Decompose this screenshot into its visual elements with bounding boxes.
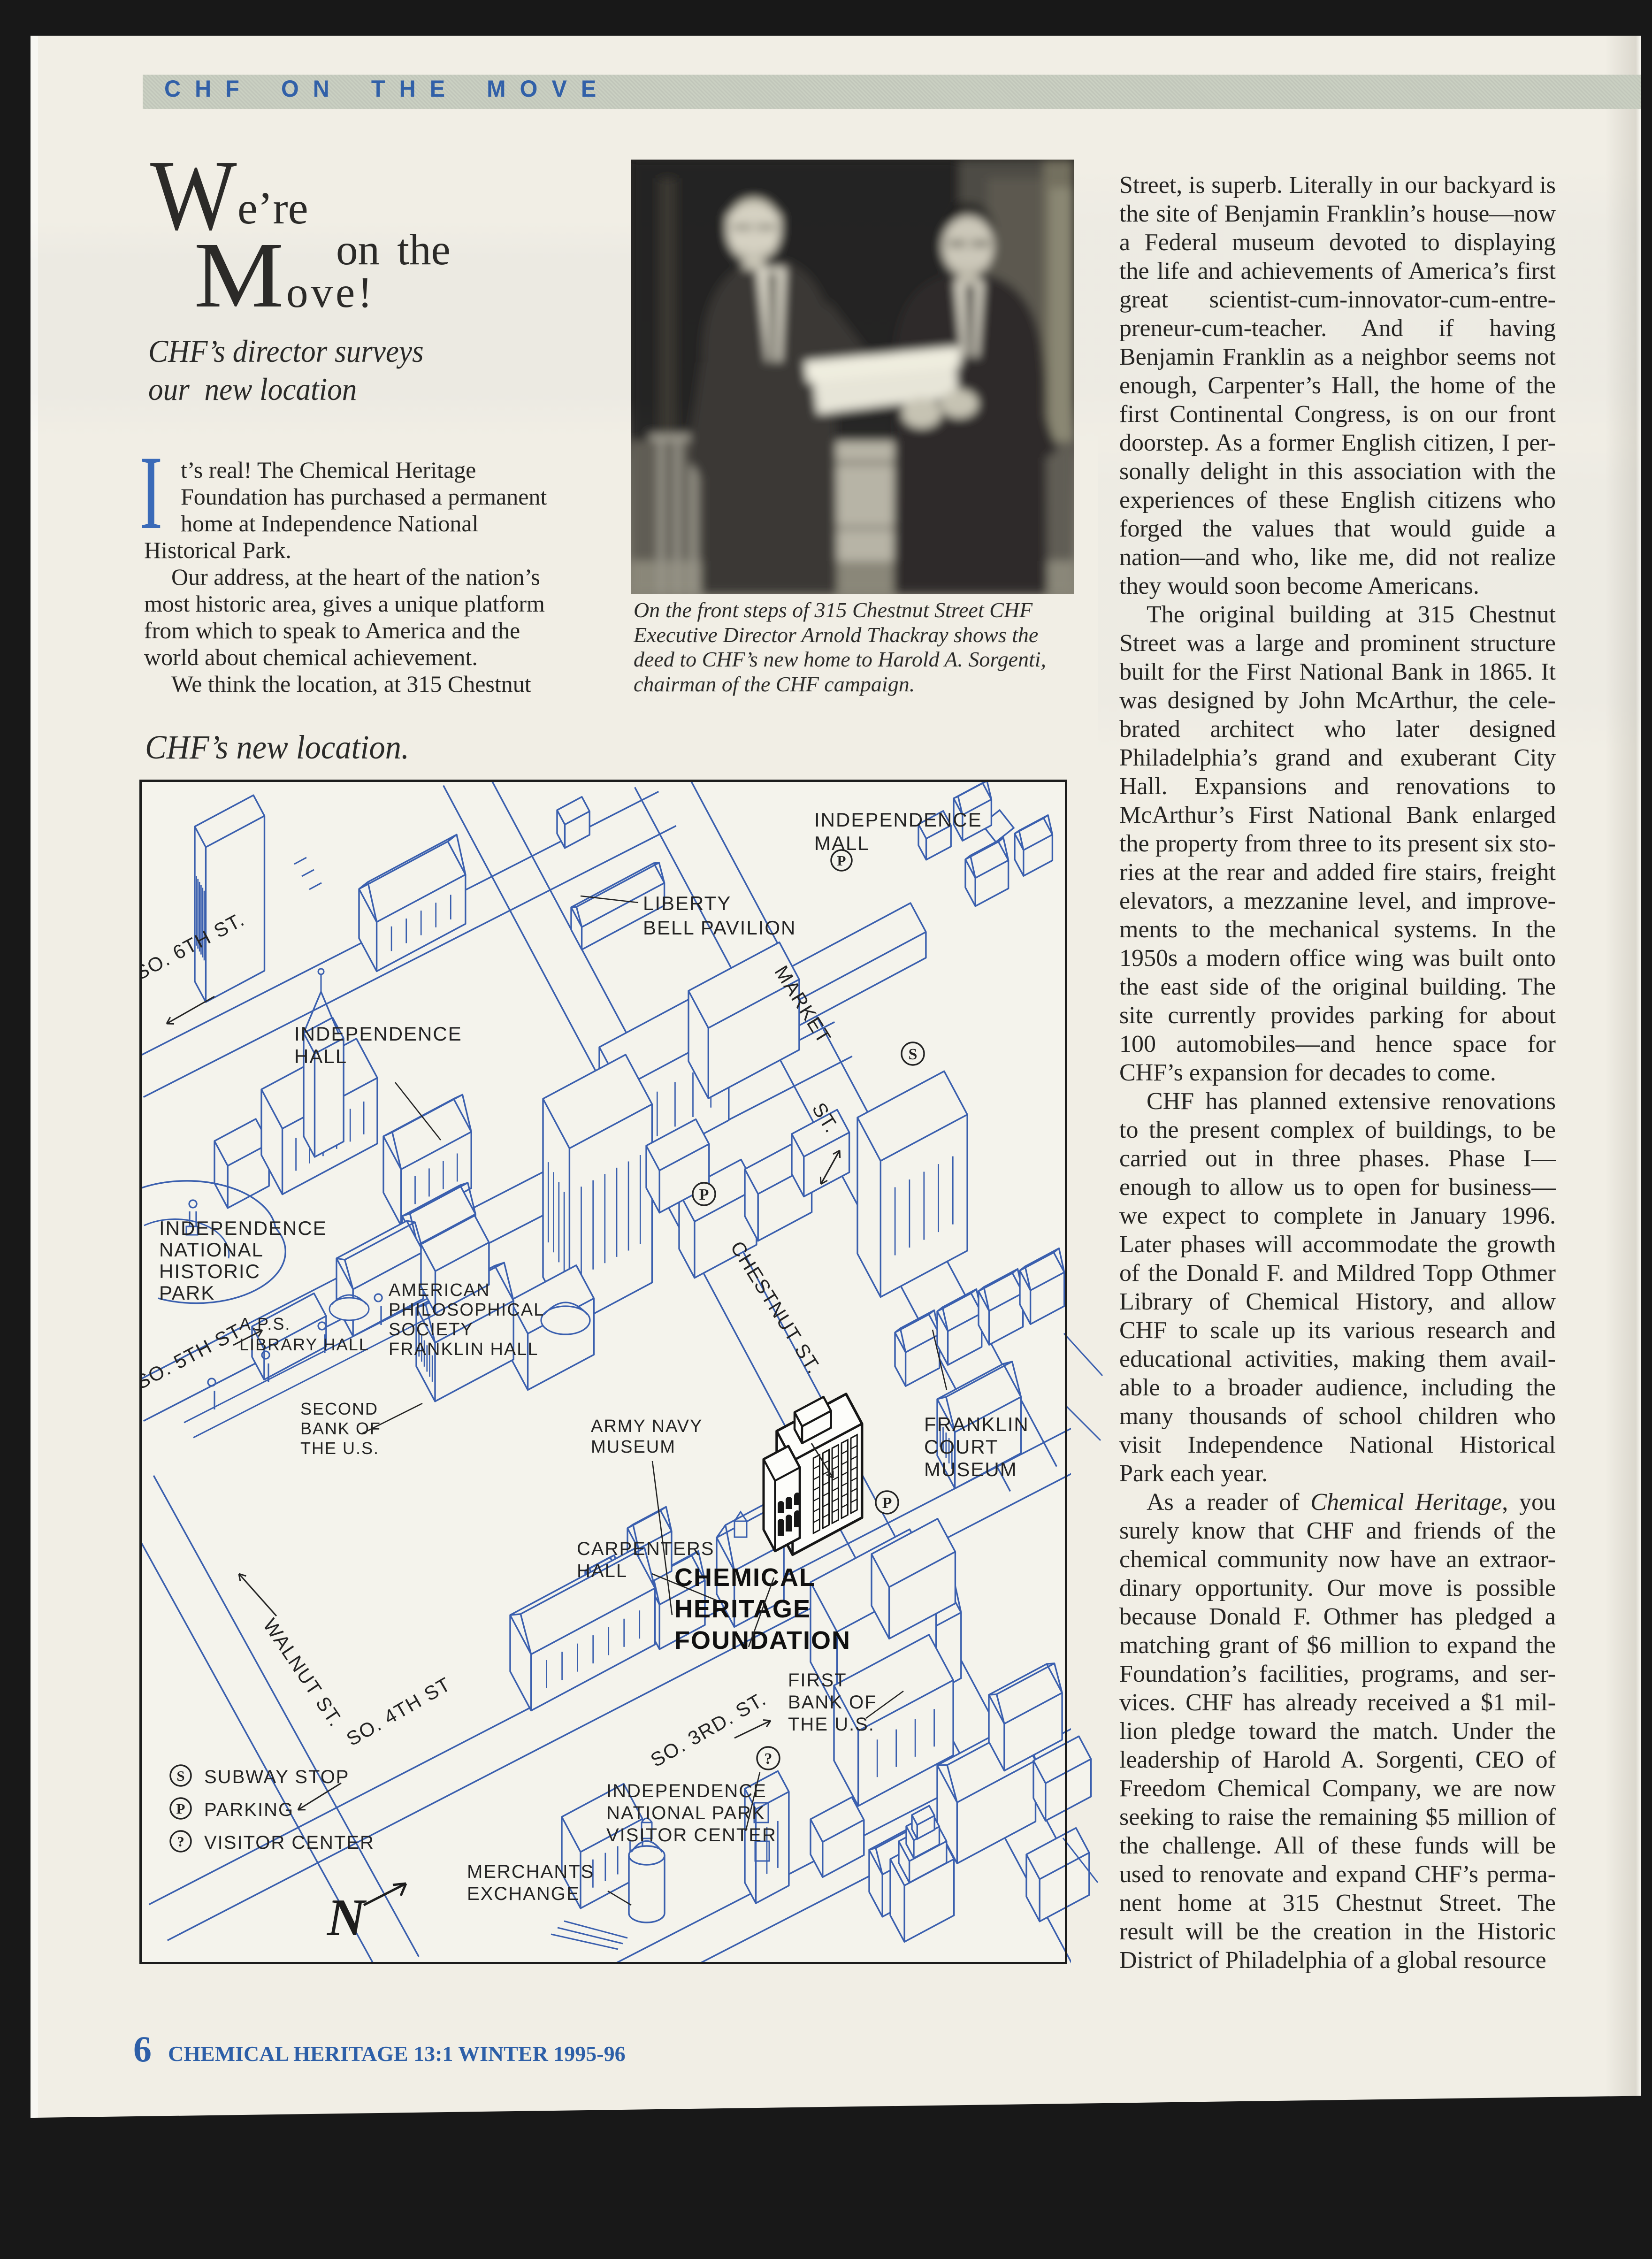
svg-text:A.P.S.: A.P.S. [239,1314,291,1333]
svg-text:PARKING: PARKING [204,1800,294,1820]
svg-text:P: P [699,1186,709,1203]
svg-text:?: ? [765,1750,772,1768]
svg-text:S: S [909,1046,918,1063]
svg-text:INDEPENDENCE: INDEPENDENCE [814,809,982,831]
svg-text:AMERICAN: AMERICAN [389,1280,490,1300]
svg-text:N: N [326,1889,367,1947]
svg-text:CARPENTERS: CARPENTERS [577,1539,714,1559]
svg-text:LIBERTY: LIBERTY [643,892,731,914]
svg-text:P: P [176,1800,185,1817]
svg-text:VISITOR CENTER: VISITOR CENTER [606,1825,777,1845]
svg-text:LIBRARY HALL: LIBRARY HALL [239,1335,369,1354]
svg-text:FIRST: FIRST [788,1670,847,1691]
svg-text:HISTORIC: HISTORIC [159,1260,260,1282]
svg-text:P: P [882,1494,892,1512]
svg-text:CHEMICAL: CHEMICAL [674,1563,816,1592]
svg-text:SECOND: SECOND [300,1399,378,1418]
svg-text:VISITOR CENTER: VISITOR CENTER [204,1832,375,1853]
svg-text:PHILOSOPHICAL: PHILOSOPHICAL [389,1300,544,1320]
svg-text:S: S [176,1768,184,1784]
svg-text:BELL PAVILION: BELL PAVILION [643,917,796,939]
svg-text:?: ? [177,1833,184,1850]
svg-text:INDEPENDENCE: INDEPENDENCE [159,1217,327,1239]
svg-text:MERCHANTS: MERCHANTS [467,1861,594,1882]
svg-text:BANK OF: BANK OF [788,1692,877,1713]
svg-text:BANK OF: BANK OF [300,1419,381,1438]
svg-text:FOUNDATION: FOUNDATION [674,1626,851,1654]
svg-text:SOCIETY: SOCIETY [389,1320,474,1340]
svg-text:P: P [837,852,846,869]
svg-text:HALL: HALL [577,1561,627,1581]
svg-text:MUSEUM: MUSEUM [924,1458,1017,1480]
svg-text:FRANKLIN HALL: FRANKLIN HALL [389,1340,539,1359]
svg-text:THE U.S.: THE U.S. [788,1714,875,1735]
svg-text:ARMY NAVY: ARMY NAVY [591,1417,703,1436]
svg-text:MUSEUM: MUSEUM [591,1437,676,1457]
svg-text:NATIONAL: NATIONAL [159,1239,264,1261]
svg-text:SUBWAY STOP: SUBWAY STOP [204,1767,349,1787]
svg-text:THE U.S.: THE U.S. [300,1439,379,1458]
svg-text:PARK: PARK [159,1282,215,1304]
svg-text:FRANKLIN: FRANKLIN [924,1413,1029,1435]
svg-text:HALL: HALL [294,1045,347,1067]
svg-text:COURT: COURT [924,1436,999,1458]
svg-text:INDEPENDENCE: INDEPENDENCE [294,1023,462,1045]
svg-text:HERITAGE: HERITAGE [674,1595,811,1623]
svg-text:INDEPENDENCE: INDEPENDENCE [606,1781,767,1801]
svg-text:EXCHANGE: EXCHANGE [467,1884,580,1904]
svg-text:NATIONAL PARK: NATIONAL PARK [606,1803,765,1823]
